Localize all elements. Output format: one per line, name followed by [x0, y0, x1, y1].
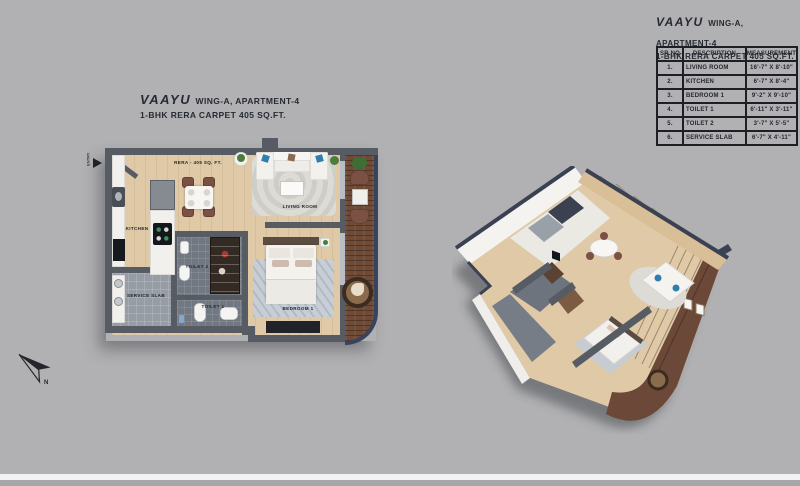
- table-cell: 3.: [657, 89, 683, 103]
- rera-area-label: RERA - 405 SQ. FT.: [148, 160, 248, 165]
- table-cell: SERVICE SLAB: [683, 131, 746, 145]
- toilet1-label: TOILET 1: [190, 304, 236, 309]
- iso-dining-chair: [614, 252, 622, 260]
- table-cell: LIVING ROOM: [683, 61, 746, 75]
- table-cell: BEDROOM 1: [683, 89, 746, 103]
- iso-dining-chair: [586, 252, 594, 260]
- iso-picture-frame: [696, 303, 704, 315]
- col-header-srno: SR.NO: [657, 47, 683, 61]
- bed-headboard: [263, 237, 319, 245]
- floor-plan-2d: ENTRY RERA - 405 SQ. FT. KITCHEN LIVING …: [90, 137, 390, 349]
- bed-pillow: [293, 248, 314, 258]
- entry-label: ENTRY: [87, 152, 91, 165]
- coffee-table: [280, 181, 304, 196]
- dining-table: [185, 186, 213, 209]
- kitchen-dark-unit: [113, 239, 125, 261]
- tv-unit: [266, 321, 320, 333]
- kitchen-sink-bowl: [115, 192, 122, 201]
- col-header-description: DESCRIPTION: [683, 47, 746, 61]
- plan-title-carpet: 1-BHK RERA CARPET 405 SQ.FT.: [140, 110, 360, 121]
- living-room-label: LIVING ROOM: [270, 204, 330, 209]
- isometric-view: [452, 166, 742, 434]
- table-cell: TOILET 1: [683, 103, 746, 117]
- bedside-plant: [323, 240, 328, 245]
- wall-toilet1-top: [177, 295, 248, 300]
- table-cell: 4.: [657, 103, 683, 117]
- footer-strip-gray: [0, 480, 800, 486]
- iso-sofa-pillow: [673, 285, 680, 292]
- balcony-chair: [350, 209, 369, 224]
- wall-bottom-jog: [248, 326, 255, 342]
- toilet2-label: TOILET 2: [176, 264, 218, 269]
- table-cell: 6'-11" X 3'-11": [746, 103, 797, 117]
- north-compass: N: [12, 344, 56, 388]
- iso-sofa-pillow: [655, 275, 662, 282]
- iso-dining-chair: [600, 232, 608, 240]
- toilet2-sink: [180, 241, 189, 254]
- wall-left: [105, 148, 112, 333]
- plan-title-block: VAAYU WING-A, APARTMENT-4 1-BHK RERA CAR…: [140, 90, 360, 121]
- wall-bottom-left: [105, 326, 252, 333]
- kitchen-tall-cabinet: [150, 180, 175, 210]
- table-cell: KITCHEN: [683, 75, 746, 89]
- plan-title-wing: WING-A, APARTMENT-4: [196, 96, 300, 106]
- brochure-sheet: VAAYU WING-A, APARTMENT-4 1-BHK RERA CAR…: [0, 0, 800, 486]
- balcony-window-2: [340, 233, 345, 285]
- kitchen-label: KITCHEN: [124, 226, 150, 231]
- bed-pillow-accent: [295, 260, 312, 267]
- wall-top-notch: [262, 138, 278, 148]
- balcony-window-1: [340, 161, 345, 199]
- iso-dining-table: [590, 239, 618, 257]
- brand-name: VAAYU: [656, 15, 704, 29]
- isometric-svg: [452, 166, 742, 434]
- wall-living-bedroom: [265, 222, 340, 228]
- plant-small: [330, 156, 339, 165]
- iso-rattan-chair: [649, 371, 667, 389]
- balcony-table: [352, 189, 368, 205]
- table-cell: 6'-7" X 8'-4": [746, 75, 797, 89]
- bedroom-label: BEDROOM 1: [268, 306, 328, 311]
- entry-arrow-icon: [93, 158, 102, 168]
- col-header-measurement: MEASUREMENT: [746, 47, 797, 61]
- table-cell: 3'-7" X 5'-5": [746, 117, 797, 131]
- north-arrow-icon: N: [12, 344, 56, 388]
- compass-north-label: N: [44, 380, 48, 386]
- bed-pillow: [269, 248, 290, 258]
- table-cell: 6'-7" X 4'-11": [746, 131, 797, 145]
- sofa-pillow-brown: [287, 153, 295, 161]
- toilet1-bin: [179, 315, 184, 323]
- wall-toilet2-right: [242, 231, 248, 335]
- table-cell: 2.: [657, 75, 683, 89]
- wall-bottom-bedroom: [248, 335, 345, 342]
- table-cell: 1.: [657, 61, 683, 75]
- plan-title-line1: VAAYU WING-A, APARTMENT-4: [140, 90, 360, 110]
- table-cell: 6.: [657, 131, 683, 145]
- rattan-chair-throw: [351, 283, 364, 296]
- service-slab-label: SERVICE SLAB: [118, 293, 174, 298]
- bed-pillow-accent: [272, 260, 289, 267]
- washing-machine-door: [114, 297, 123, 306]
- measurement-table: SR.NO DESCRIPTION MEASUREMENT 1. LIVING …: [656, 46, 798, 146]
- sofa-seat: [274, 160, 310, 172]
- balcony-chair: [350, 170, 369, 185]
- bed-blanket: [266, 279, 316, 304]
- table-cell: 9'-2" X 9'-10": [746, 89, 797, 103]
- kitchen-cooktop: [153, 223, 172, 245]
- washing-machine-door: [114, 279, 123, 288]
- balcony-plant: [352, 157, 367, 169]
- table-cell: 5.: [657, 117, 683, 131]
- table-cell: TOILET 2: [683, 117, 746, 131]
- table-cell: 16'-7" X 8'-10": [746, 61, 797, 75]
- brand-name: VAAYU: [140, 92, 191, 107]
